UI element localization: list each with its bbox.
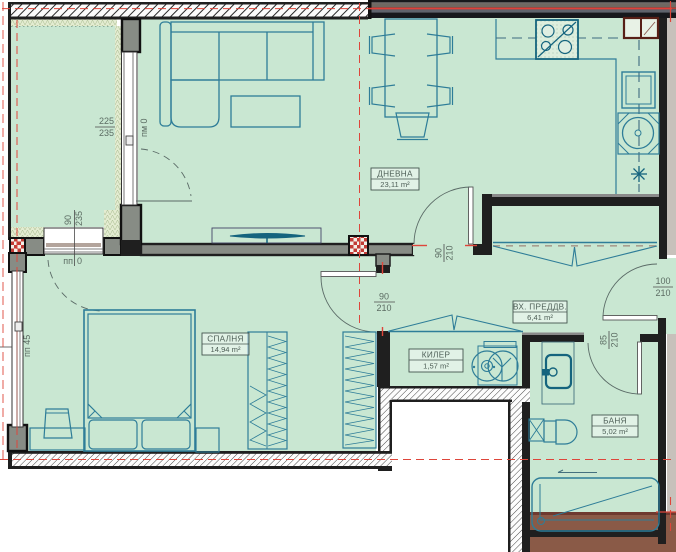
- svg-text:90: 90: [63, 215, 73, 225]
- svg-text:225: 225: [99, 116, 114, 126]
- svg-text:210: 210: [376, 303, 391, 313]
- svg-text:1,57 m²: 1,57 m²: [423, 362, 449, 371]
- svg-text:90: 90: [434, 248, 444, 258]
- svg-text:235: 235: [99, 128, 114, 138]
- svg-text:210: 210: [445, 245, 455, 260]
- svg-text:СПАЛНЯ: СПАЛНЯ: [207, 335, 243, 344]
- svg-text:90: 90: [379, 292, 389, 302]
- svg-text:210: 210: [610, 332, 620, 347]
- svg-text:пм 0: пм 0: [139, 118, 149, 137]
- svg-text:пп 45: пп 45: [22, 335, 32, 357]
- svg-text:0: 0: [77, 256, 82, 266]
- svg-text:ДНЕВНА: ДНЕВНА: [377, 170, 413, 179]
- svg-text:ВХ. ПРЕДДВ.: ВХ. ПРЕДДВ.: [513, 303, 567, 312]
- svg-text:5,02 m²: 5,02 m²: [602, 427, 628, 436]
- svg-text:КИЛЕР: КИЛЕР: [422, 351, 451, 360]
- svg-text:100: 100: [655, 276, 670, 286]
- svg-text:6,41 m²: 6,41 m²: [527, 313, 553, 322]
- svg-text:14,94 m²: 14,94 m²: [211, 345, 241, 354]
- svg-text:235: 235: [74, 211, 84, 226]
- svg-text:23,11 m²: 23,11 m²: [380, 180, 410, 189]
- svg-text:БАНЯ: БАНЯ: [603, 417, 627, 426]
- svg-text:85: 85: [599, 335, 609, 345]
- svg-text:210: 210: [655, 288, 670, 298]
- svg-text:пп: пп: [63, 256, 73, 266]
